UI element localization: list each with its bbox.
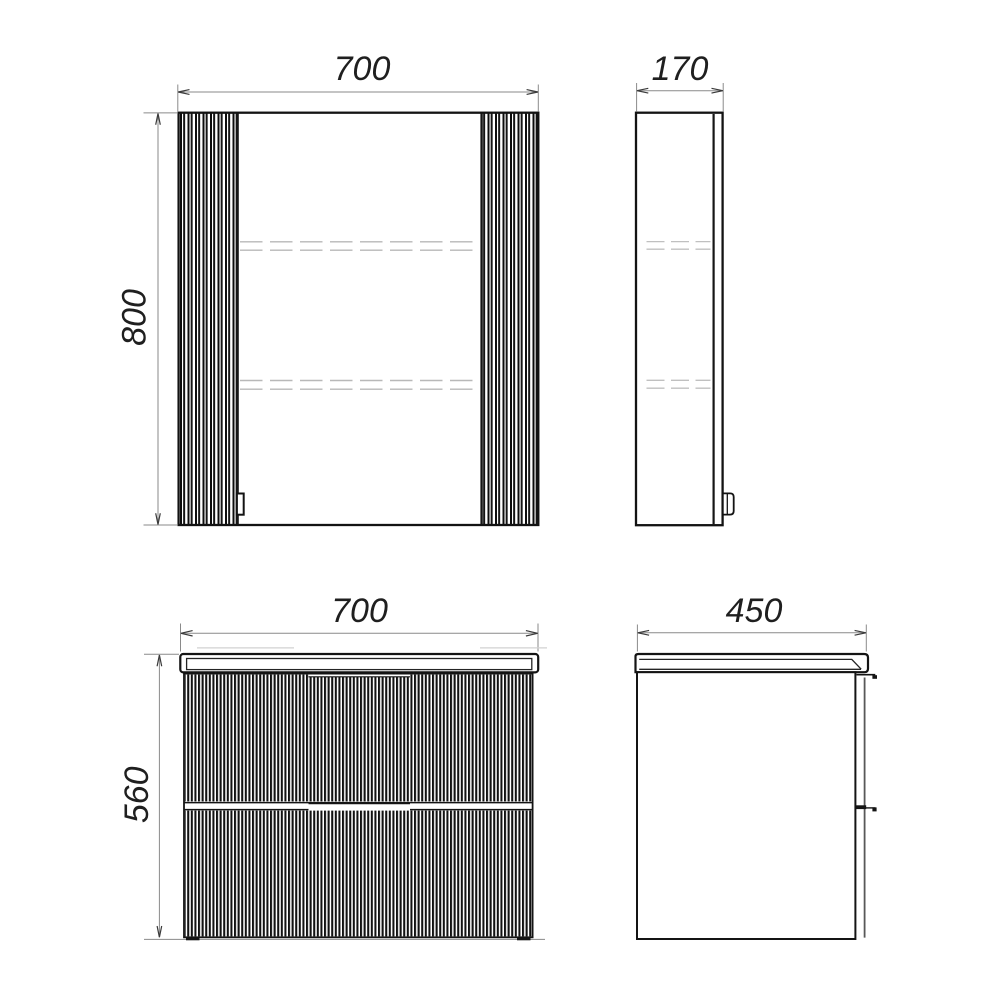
svg-text:700: 700	[331, 592, 388, 630]
svg-text:560: 560	[118, 766, 156, 823]
svg-text:700: 700	[334, 50, 391, 88]
svg-text:800: 800	[116, 289, 154, 346]
svg-text:450: 450	[726, 592, 783, 630]
svg-text:170: 170	[652, 50, 709, 88]
